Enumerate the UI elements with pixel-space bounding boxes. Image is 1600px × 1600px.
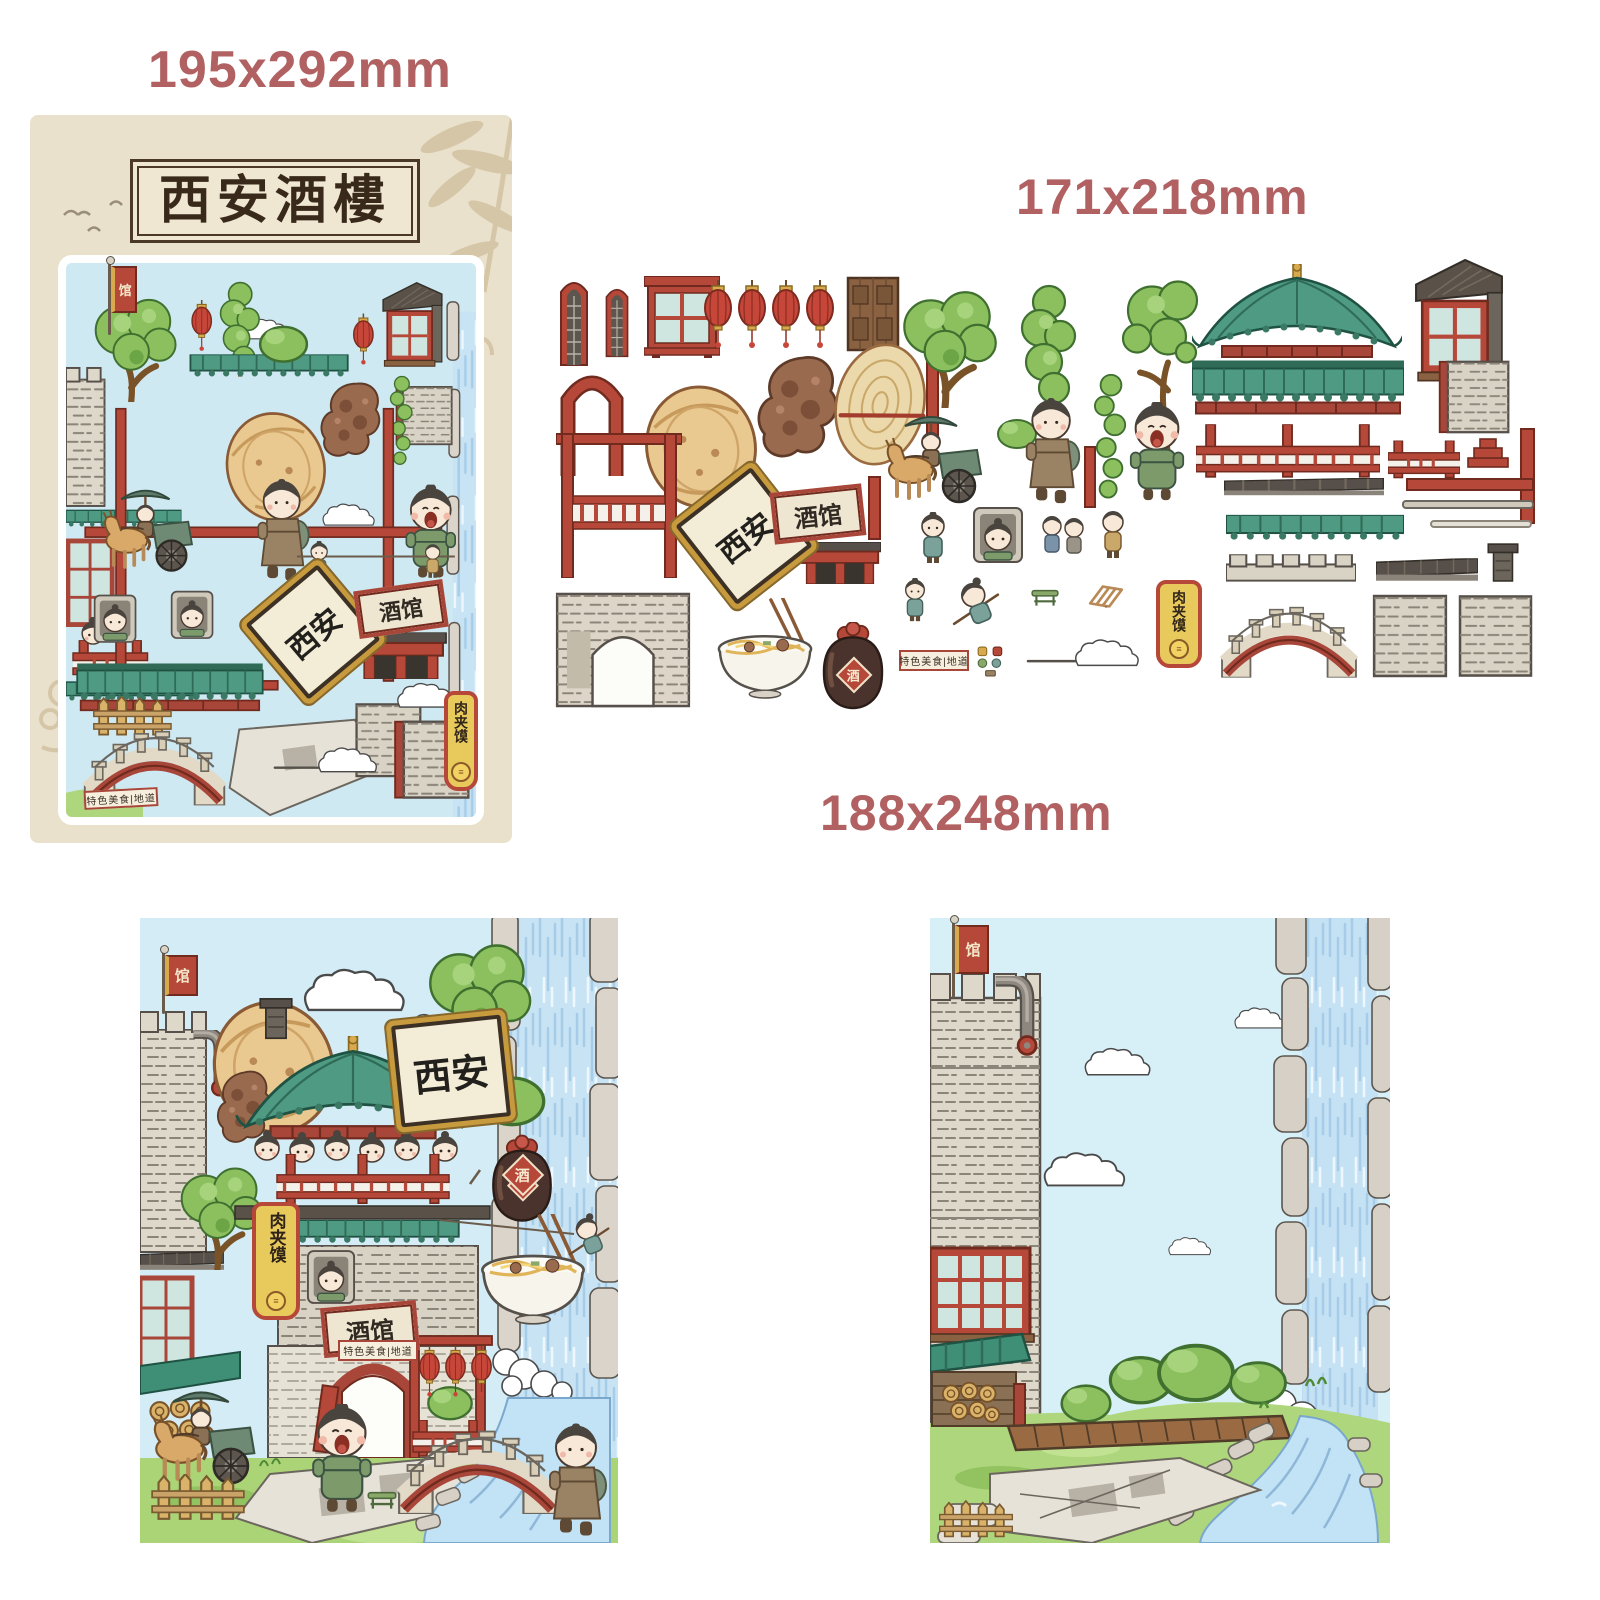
assembled-scene	[140, 918, 618, 1543]
scene-specialty-sign: 特色美食|地道	[338, 1340, 418, 1361]
sticker-pavilion-roof	[1192, 264, 1402, 364]
wine-char: 酒	[847, 665, 860, 684]
sticker-dark-eave	[1376, 558, 1478, 582]
sticker-lantern-3	[772, 280, 800, 350]
cover-poster: 西安酒樓	[30, 115, 512, 843]
roujiamo-banner-text: 肉夹馍	[454, 701, 468, 743]
sticker-red-beam	[1406, 478, 1534, 491]
sticker-burger-icon: ≡	[1169, 639, 1189, 659]
sheet-size-label: 171x218mm	[1016, 168, 1309, 226]
red-window	[930, 1248, 1034, 1342]
sticker-specialty-text: 特色美食|地道	[899, 653, 969, 668]
sticker-toddler	[1098, 510, 1128, 560]
sticker-children-pair	[1038, 514, 1088, 559]
poster-illustration	[58, 255, 484, 825]
scene-roujiamo-banner: 肉夹馍≡	[252, 1202, 300, 1320]
sticker-stone-arch-wall	[554, 592, 692, 708]
scene-flag-finial-icon	[160, 945, 169, 954]
sticker-red-pole-b	[868, 476, 881, 540]
sticker-tavern-sign: 酒馆	[770, 483, 867, 544]
sticker-stone-panel-2	[1458, 594, 1533, 678]
tavern-sign-text: 酒馆	[377, 590, 425, 628]
sticker-noodle-bowl	[712, 598, 818, 700]
sticker-horse-cart	[884, 406, 1008, 506]
sticker-small-boy	[900, 578, 930, 622]
bg-scene-flag-text: 馆	[955, 925, 989, 974]
sticker-roujiamo-text: 肉夹馍	[1172, 590, 1186, 632]
sticker-cypress-tree	[1008, 282, 1090, 414]
scene-specialty-text: 特色美食|地道	[343, 1343, 413, 1358]
title-plaque: 西安酒樓	[130, 159, 420, 243]
sticker-green-bench	[1030, 586, 1060, 608]
flag-finial-icon	[106, 256, 115, 265]
scene-size-label: 188x248mm	[820, 784, 1113, 842]
sticker-lantern-2	[738, 280, 766, 350]
sticker-cloud-whoosh	[1026, 630, 1146, 678]
sticker-tiled-ridge-short	[1226, 514, 1404, 544]
sticker-roujiamo-banner: 肉夹馍≡	[1156, 580, 1202, 668]
roujiamo-banner-poster: 肉夹馍≡	[444, 691, 478, 791]
sticker-small-girl	[916, 512, 950, 564]
bg-flag-finial-icon	[950, 915, 959, 924]
scene-flag: 馆	[162, 950, 196, 1014]
scene-flag-text: 馆	[165, 955, 198, 996]
sticker-tiled-ridge-long	[1192, 360, 1404, 416]
sticker-flying-girl	[950, 576, 1002, 628]
xian-plaque-text: 西安	[276, 596, 350, 668]
scene-xian-plaque: 西安	[391, 1015, 511, 1128]
poster-size-label: 195x292mm	[148, 40, 452, 100]
sticker-tavern-text: 酒馆	[792, 494, 843, 534]
background-scene	[930, 918, 1390, 1543]
sticker-xian-text: 西安	[707, 500, 781, 572]
sticker-gray-pole-1	[1402, 500, 1534, 509]
sticker-red-pole-c	[1084, 446, 1096, 508]
sticker-arch-bridge	[1220, 594, 1358, 678]
sticker-brick-panel-red-edge	[1424, 360, 1524, 434]
sticker-arch-window-a	[558, 270, 590, 367]
sticker-chimney	[1486, 542, 1520, 582]
sticker-battlement-wall	[1226, 554, 1356, 582]
specialty-sign-poster: 特色美食|地道	[84, 787, 159, 810]
specialty-sign-text: 特色美食|地道	[86, 789, 156, 808]
scene-burger-icon: ≡	[266, 1291, 286, 1311]
woodshed	[930, 1334, 1030, 1440]
scene-wine-char: 酒	[515, 1164, 530, 1185]
poster-title: 西安酒樓	[159, 175, 391, 227]
sticker-wood-rack	[1086, 584, 1126, 608]
sticker-timber-frame	[556, 430, 682, 578]
sticker-red-bracket	[1466, 438, 1510, 468]
tavern-flag: 馆	[108, 261, 134, 335]
sticker-railing-short	[1388, 440, 1460, 480]
sticker-shouting-boy	[1124, 402, 1190, 504]
burger-icon: ≡	[451, 762, 471, 782]
bg-scene-flag: 馆	[952, 920, 988, 998]
sticker-dark-eave-long	[1224, 478, 1384, 496]
sticker-red-pole-d	[1520, 428, 1535, 524]
sticker-specialty-sign: 特色美食|地道	[899, 650, 969, 671]
sticker-mini-props	[976, 644, 1006, 678]
sticker-lantern-4	[806, 280, 834, 350]
sticker-railing-long	[1196, 424, 1380, 480]
sticker-gray-pole-2	[1430, 520, 1532, 528]
flag-text: 馆	[111, 266, 137, 313]
sticker-lantern-1	[704, 280, 732, 350]
scene-roujiamo-text: 肉夹馍	[268, 1212, 285, 1263]
sticker-window-girl	[972, 506, 1024, 564]
sticker-arch-window-b	[604, 270, 630, 367]
sticker-gate-lintel	[798, 542, 882, 584]
sticker-walking-boy	[1022, 398, 1082, 506]
scene-xian-text: 西安	[410, 1040, 491, 1103]
sticker-stone-panel-1	[1372, 594, 1448, 678]
sticker-pine-tree	[892, 278, 1004, 408]
